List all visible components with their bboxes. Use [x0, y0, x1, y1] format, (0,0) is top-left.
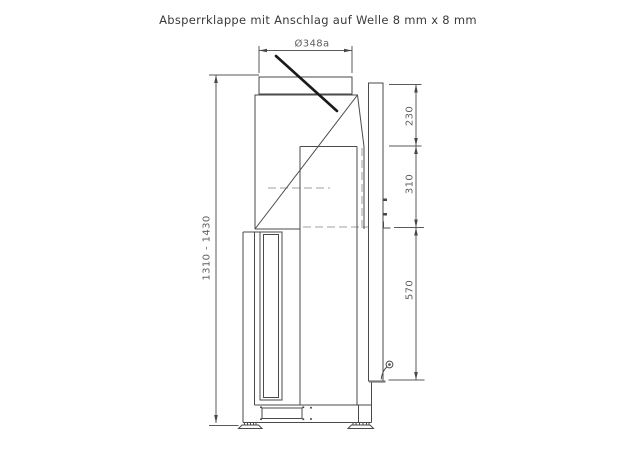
- dimension-230-label: 230: [405, 106, 416, 126]
- duct-collar: [259, 77, 352, 94]
- panel-tick-upper: [383, 199, 387, 202]
- hidden-lines: [268, 148, 376, 228]
- height-dimension: [214, 75, 218, 423]
- drawing-title: Absperrklappe mit Anschlag auf Welle 8 m…: [159, 13, 477, 27]
- cabinet-body: [243, 229, 372, 423]
- panel-tick-lower: [383, 213, 387, 216]
- flap-closed-position-line: [255, 95, 358, 229]
- dimension-extension-lines: [209, 46, 425, 426]
- technical-drawing: [0, 0, 624, 460]
- left-foot: [239, 423, 263, 429]
- dimension-310-label: 310: [405, 174, 416, 194]
- label-plate: [262, 408, 302, 419]
- right-foot: [348, 423, 374, 429]
- damper-housing: [255, 95, 364, 229]
- stop-bracket: [384, 222, 391, 229]
- height-range-label: 1310 - 1430: [202, 215, 213, 280]
- right-dimension-chain: [414, 85, 418, 381]
- drawing-canvas: Absperrklappe mit Anschlag auf Welle 8 m…: [0, 0, 624, 460]
- diameter-dimension-label: Ø348a: [294, 39, 329, 50]
- dimension-570-label: 570: [405, 280, 416, 300]
- side-panel: [369, 83, 393, 382]
